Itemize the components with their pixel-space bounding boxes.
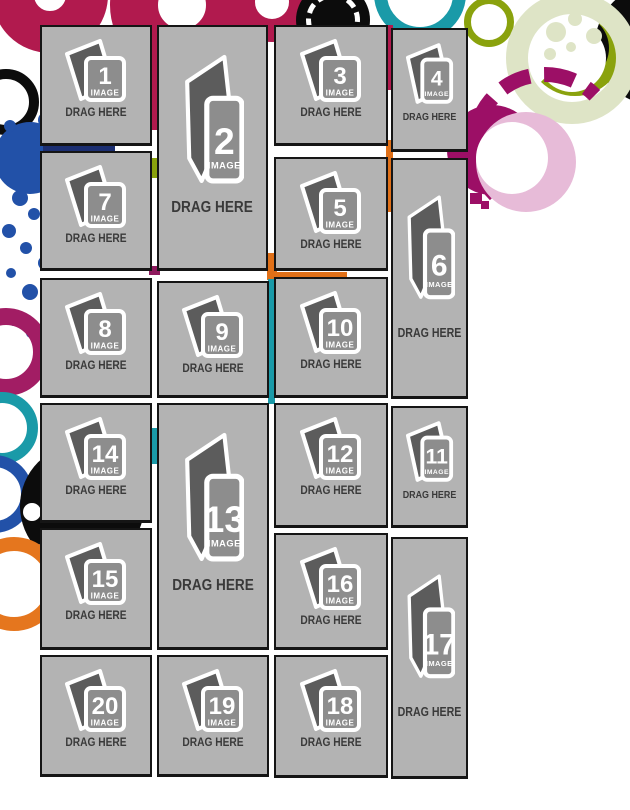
slot-number: 20 bbox=[92, 693, 119, 720]
slot-number: 16 bbox=[327, 571, 354, 598]
slot-number: 1 bbox=[98, 63, 111, 90]
drag-here-label: DRAG HERE bbox=[300, 237, 361, 251]
slot-number: 13 bbox=[204, 498, 244, 540]
image-slot-13[interactable]: 13 DRAG HERE bbox=[157, 403, 269, 650]
slot-number: 10 bbox=[327, 315, 354, 342]
pale-green-dot bbox=[586, 28, 602, 44]
image-slot-19[interactable]: 19 DRAG HERE bbox=[157, 655, 269, 777]
collage-template-page: 1 DRAG HERE 2 DRAG HERE 3 DRAG HERE 4 DR… bbox=[0, 0, 630, 810]
image-slot-6[interactable]: 6 DRAG HERE bbox=[391, 158, 468, 399]
drag-here-label: DRAG HERE bbox=[65, 608, 126, 622]
photo-placeholder-icon: 18 bbox=[299, 666, 363, 732]
photo-placeholder-icon: 12 bbox=[299, 414, 363, 480]
photo-placeholder-icon: 7 bbox=[64, 162, 128, 228]
drag-here-label: DRAG HERE bbox=[65, 231, 126, 245]
pale-green-dot bbox=[546, 22, 566, 42]
slot-number: 18 bbox=[327, 693, 354, 720]
blue-dot bbox=[4, 120, 16, 132]
drag-here-label: DRAG HERE bbox=[65, 105, 126, 119]
photo-placeholder-icon: 19 bbox=[181, 666, 245, 732]
photo-placeholder-icon: 6 bbox=[405, 183, 455, 313]
photo-placeholder-icon: 1 bbox=[64, 36, 128, 102]
image-slot-2[interactable]: 2 DRAG HERE bbox=[157, 25, 268, 271]
blue-dot bbox=[12, 190, 28, 206]
slot-number: 9 bbox=[215, 319, 228, 346]
pale-green-dot bbox=[544, 48, 556, 60]
slot-number: 6 bbox=[430, 250, 447, 283]
pale-green-dot bbox=[568, 12, 582, 26]
drag-here-label: DRAG HERE bbox=[65, 483, 126, 497]
slot-number: 3 bbox=[333, 63, 346, 90]
slot-number: 11 bbox=[425, 446, 448, 469]
image-slot-7[interactable]: 7 DRAG HERE bbox=[40, 151, 152, 271]
image-slot-20[interactable]: 20 DRAG HERE bbox=[40, 655, 152, 777]
photo-placeholder-icon: 20 bbox=[64, 666, 128, 732]
magenta-chip-ornament bbox=[481, 201, 489, 209]
blue-dot bbox=[2, 224, 16, 238]
photo-placeholder-icon: 8 bbox=[64, 289, 128, 355]
drag-here-label: DRAG HERE bbox=[300, 735, 361, 749]
photo-placeholder-icon: 16 bbox=[299, 544, 363, 610]
slot-number: 19 bbox=[209, 693, 236, 720]
slot-number: 17 bbox=[422, 629, 455, 662]
photo-placeholder-icon: 2 bbox=[182, 51, 244, 189]
slot-number: 14 bbox=[92, 441, 119, 468]
photo-placeholder-icon: 5 bbox=[299, 168, 363, 234]
drag-here-label: DRAG HERE bbox=[300, 613, 361, 627]
pale-green-dot bbox=[566, 42, 576, 52]
image-slot-17[interactable]: 17 DRAG HERE bbox=[391, 537, 468, 779]
image-slot-4[interactable]: 4 DRAG HERE bbox=[391, 28, 468, 152]
image-slot-14[interactable]: 14 DRAG HERE bbox=[40, 403, 152, 523]
image-slot-9[interactable]: 9 DRAG HERE bbox=[157, 281, 269, 398]
slot-number: 8 bbox=[98, 316, 111, 343]
image-slot-8[interactable]: 8 DRAG HERE bbox=[40, 278, 152, 398]
blue-dot bbox=[6, 268, 16, 278]
drag-here-label: DRAG HERE bbox=[172, 199, 254, 217]
drag-here-label: DRAG HERE bbox=[300, 357, 361, 371]
image-slot-10[interactable]: 10 DRAG HERE bbox=[274, 277, 388, 398]
drag-here-label: DRAG HERE bbox=[403, 489, 457, 501]
slot-number: 5 bbox=[333, 195, 346, 222]
pink-gear-center bbox=[476, 122, 548, 194]
photo-placeholder-icon: 4 bbox=[405, 38, 455, 108]
blue-dot bbox=[28, 208, 40, 220]
photo-placeholder-icon: 3 bbox=[299, 36, 363, 102]
image-slot-3[interactable]: 3 DRAG HERE bbox=[274, 25, 388, 146]
drag-here-label: DRAG HERE bbox=[403, 111, 457, 123]
slot-number: 4 bbox=[430, 68, 442, 91]
blue-dot bbox=[22, 284, 38, 300]
drag-here-label: DRAG HERE bbox=[182, 361, 243, 375]
slot-number: 12 bbox=[327, 441, 354, 468]
photo-placeholder-icon: 9 bbox=[181, 292, 245, 358]
image-slot-1[interactable]: 1 DRAG HERE bbox=[40, 25, 152, 146]
photo-placeholder-icon: 15 bbox=[64, 539, 128, 605]
drag-here-label: DRAG HERE bbox=[172, 577, 254, 595]
white-dot bbox=[23, 503, 41, 521]
image-slot-16[interactable]: 16 DRAG HERE bbox=[274, 533, 388, 650]
blue-dot bbox=[20, 242, 32, 254]
drag-here-label: DRAG HERE bbox=[398, 705, 462, 719]
photo-placeholder-icon: 14 bbox=[64, 414, 128, 480]
slot-number: 15 bbox=[92, 566, 119, 593]
drag-here-label: DRAG HERE bbox=[65, 735, 126, 749]
drag-here-label: DRAG HERE bbox=[182, 735, 243, 749]
drag-here-label: DRAG HERE bbox=[398, 326, 462, 340]
photo-placeholder-icon: 17 bbox=[405, 562, 455, 692]
photo-placeholder-icon: 11 bbox=[405, 416, 455, 486]
photo-placeholder-icon: 13 bbox=[182, 429, 244, 567]
photo-placeholder-icon: 10 bbox=[299, 288, 363, 354]
image-slot-11[interactable]: 11 DRAG HERE bbox=[391, 406, 468, 528]
image-slot-12[interactable]: 12 DRAG HERE bbox=[274, 403, 388, 528]
image-slot-5[interactable]: 5 DRAG HERE bbox=[274, 157, 388, 271]
image-slot-15[interactable]: 15 DRAG HERE bbox=[40, 528, 152, 650]
teal-ring-ornament bbox=[0, 392, 38, 464]
drag-here-label: DRAG HERE bbox=[300, 105, 361, 119]
olive-ring-ornament bbox=[464, 0, 514, 47]
image-slot-18[interactable]: 18 DRAG HERE bbox=[274, 655, 388, 778]
slot-number: 7 bbox=[98, 189, 111, 216]
slot-number: 2 bbox=[214, 120, 235, 162]
drag-here-label: DRAG HERE bbox=[300, 483, 361, 497]
drag-here-label: DRAG HERE bbox=[65, 358, 126, 372]
